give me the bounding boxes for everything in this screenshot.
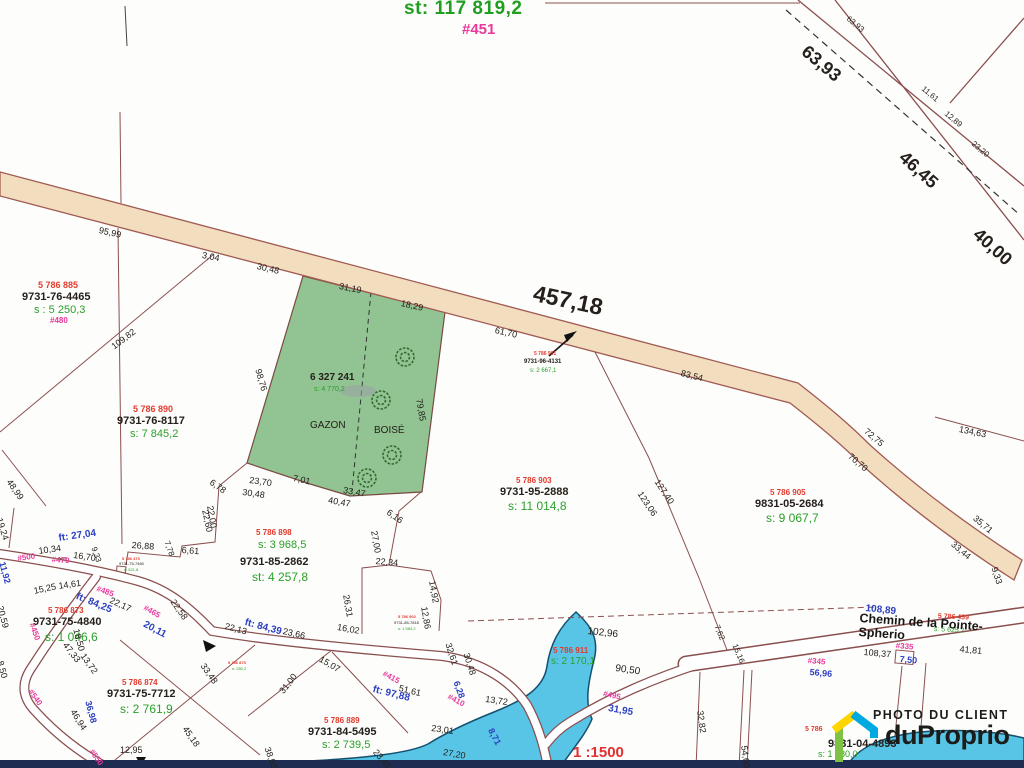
parcel-area: s: 2 170,1: [551, 657, 595, 667]
parcel-area: s: 11 014,8: [508, 500, 567, 512]
plan-total-area: st: 117 819,2: [404, 0, 522, 20]
parcel-area: s: 280,2: [232, 667, 246, 671]
parcel-matricule: 9731-84-5495: [308, 727, 377, 738]
parcel-area: s: 2 667,1: [530, 368, 556, 374]
distance-measurement: 22,34: [375, 557, 398, 568]
parcel-area: s: 1 583,2: [398, 627, 416, 631]
lot-number: 5 786: [805, 726, 823, 733]
lot-number: 5 786 874: [122, 679, 158, 687]
lot-number: 5 786 885: [38, 281, 78, 290]
lot-number: 5 786 911: [553, 647, 588, 655]
lot-number: 5 786 898: [256, 529, 292, 537]
lot-number: 5 786 902: [398, 615, 416, 619]
lot-number: 5 786 890: [133, 405, 173, 414]
distance-measurement: 6,61: [181, 546, 199, 556]
parcel-matricule: 9731-76-4465: [22, 292, 91, 303]
distance-measurement: 32,82: [695, 710, 707, 734]
parcel-area: s: 2 761,9: [120, 703, 173, 715]
lot-number: 5 786 903: [516, 477, 552, 485]
parcel-matricule: BOISÉ: [374, 426, 405, 436]
top-right-road: [798, 0, 1024, 240]
parcel-matricule: 9731-85-2862: [240, 557, 309, 568]
parcel-matricule: 9731-75-4840: [33, 617, 102, 628]
parcel-area: s: 7 845,2: [130, 429, 178, 440]
parcel-area: st: 4 257,8: [252, 571, 308, 583]
address-marker: #480: [50, 317, 68, 325]
parcel-matricule: 9731-75-7712: [107, 689, 176, 700]
distance-measurement: 12,95: [120, 746, 143, 755]
address-marker: #470: [51, 556, 69, 565]
logo-brand: duProprio: [885, 720, 1010, 751]
distance-measurement: 26,88: [131, 541, 154, 552]
parcel-matricule: 9731-85-7818: [394, 621, 419, 625]
parcel-matricule: 9831-05-2684: [755, 499, 824, 510]
lot-number: 5 786 873: [48, 607, 84, 615]
parcel-area: s: 2 739,5: [322, 740, 370, 751]
main-road: [0, 172, 1022, 580]
lot-number: 5 786 901: [534, 352, 556, 357]
lot-number: 5 786 875: [228, 661, 246, 665]
parcel-matricule: 9731-95-2888: [500, 487, 569, 498]
duproprio-logo: PHOTO DU CLIENT duProprio: [828, 694, 1024, 764]
map-scale: 1 :1500: [573, 744, 624, 761]
address-marker: #345: [807, 657, 825, 667]
parcel-matricule: 6 327 241: [310, 373, 355, 383]
parcel-area: s: 3 968,5: [258, 540, 306, 551]
cadastral-map: st: 117 819,2 #451 5 786 8859731-76-4465…: [0, 0, 1024, 768]
parcel-area: s : 5 250,3: [34, 305, 85, 316]
ink-smudge: [340, 385, 376, 397]
dashed-boundary: [468, 607, 876, 621]
distance-measurement: 54,60: [739, 745, 751, 768]
parcel-matricule: 9731-96-4131: [524, 359, 561, 365]
plan-reference: #451: [462, 21, 495, 38]
address-marker: #335: [895, 642, 913, 652]
frontage-measurement: 7,50: [899, 655, 917, 665]
lot-number: 5 786 889: [324, 717, 360, 725]
parcel-area: s: 521,8: [124, 568, 138, 572]
road-centerline-dashed: [786, 10, 1020, 215]
parcel-matricule: GAZON: [310, 421, 346, 431]
parcel-area: s: 4 770,2: [314, 386, 345, 393]
parcel-matricule: 9731-76-8117: [117, 416, 185, 427]
parcel-matricule: 9731-75-7460: [119, 562, 144, 566]
frontage-measurement: 56,96: [809, 668, 832, 679]
lot-number: 5 786 905: [770, 489, 806, 497]
house-icon: [828, 710, 878, 764]
parcel-area: s: 9 067,7: [766, 512, 819, 524]
survey-mark: [203, 640, 216, 652]
